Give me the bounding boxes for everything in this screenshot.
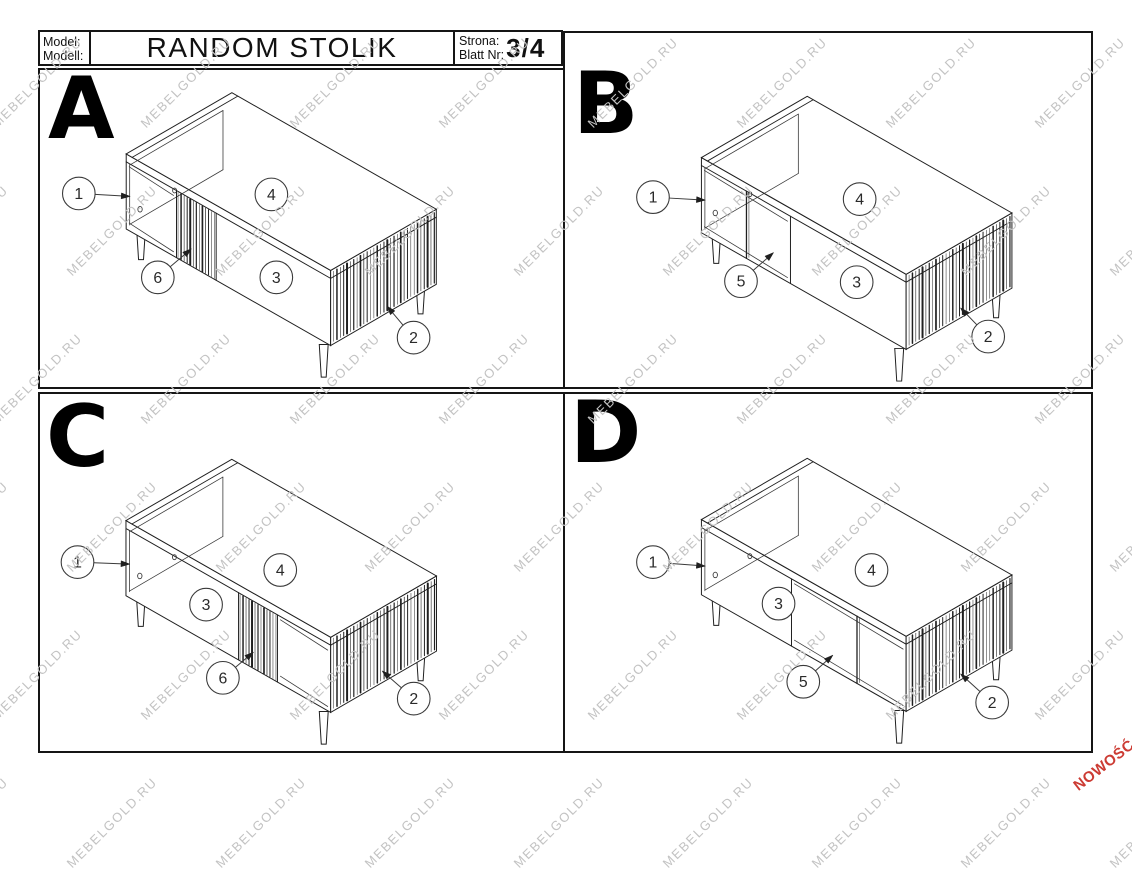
watermark-text: MEBELGOLD.RU <box>809 774 905 870</box>
page-label-de: Blatt Nr: <box>459 48 504 62</box>
assembly-drawing-d: 14352 <box>565 394 1091 751</box>
page-number-box: Strona: Blatt Nr: 3/4 <box>453 30 563 66</box>
svg-text:3: 3 <box>272 270 281 287</box>
panel-letter-b: B <box>573 73 637 135</box>
page-labels: Strona: Blatt Nr: <box>459 34 504 62</box>
svg-text:1: 1 <box>74 186 83 203</box>
watermark-text: MEBELGOLD.RU <box>1107 182 1132 278</box>
instruction-sheet-page: { "header": { "model_label_line1": "Mode… <box>0 0 1132 800</box>
svg-text:1: 1 <box>73 555 82 572</box>
panel-variant-b: 14532 B <box>563 31 1093 389</box>
watermark-text: MEBELGOLD.RU <box>1107 478 1132 574</box>
page-title: RANDOM STOLIK <box>147 32 398 64</box>
svg-text:1: 1 <box>649 555 658 572</box>
svg-text:2: 2 <box>409 691 418 708</box>
panel-variant-a: 14632 A <box>38 68 565 389</box>
title-box: RANDOM STOLIK <box>89 30 455 66</box>
page-label-pl: Strona: <box>459 34 504 48</box>
svg-text:4: 4 <box>855 192 864 209</box>
panel-letter-c: C <box>46 406 107 468</box>
svg-text:3: 3 <box>774 596 783 613</box>
panel-variant-c: 14362 C <box>38 392 565 753</box>
watermark-text: MEBELGOLD.RU <box>0 774 11 870</box>
svg-text:1: 1 <box>649 190 658 207</box>
watermark-text: MEBELGOLD.RU <box>362 774 458 870</box>
watermark-text: MEBELGOLD.RU <box>1107 774 1132 870</box>
watermark-text: MEBELGOLD.RU <box>511 774 607 870</box>
assembly-drawing-c: 14362 <box>40 394 563 751</box>
svg-text:6: 6 <box>153 270 162 287</box>
watermark-text: MEBELGOLD.RU <box>958 774 1054 870</box>
assembly-drawing-a: 14632 <box>40 70 563 387</box>
page-number-value: 3/4 <box>506 33 545 64</box>
assembly-drawing-b: 14532 <box>565 33 1091 387</box>
svg-text:3: 3 <box>202 597 211 614</box>
svg-text:4: 4 <box>867 562 876 579</box>
svg-text:2: 2 <box>409 330 418 347</box>
watermark-text: MEBELGOLD.RU <box>660 774 756 870</box>
panel-letter-d: D <box>570 402 639 464</box>
svg-text:5: 5 <box>737 274 746 291</box>
watermark-text: MEBELGOLD.RU <box>0 182 11 278</box>
svg-text:4: 4 <box>276 562 285 579</box>
svg-text:3: 3 <box>852 275 861 292</box>
svg-text:2: 2 <box>984 329 993 346</box>
model-label-pl: Model: <box>43 35 89 49</box>
svg-text:2: 2 <box>988 695 997 712</box>
svg-text:6: 6 <box>218 670 227 687</box>
watermark-text: MEBELGOLD.RU <box>0 478 11 574</box>
svg-text:4: 4 <box>267 187 276 204</box>
watermark-text: MEBELGOLD.RU <box>64 774 160 870</box>
panel-variant-d: 14352 D <box>563 392 1093 753</box>
watermark-text: MEBELGOLD.RU <box>213 774 309 870</box>
svg-text:5: 5 <box>799 674 808 691</box>
panel-letter-a: A <box>48 78 113 140</box>
